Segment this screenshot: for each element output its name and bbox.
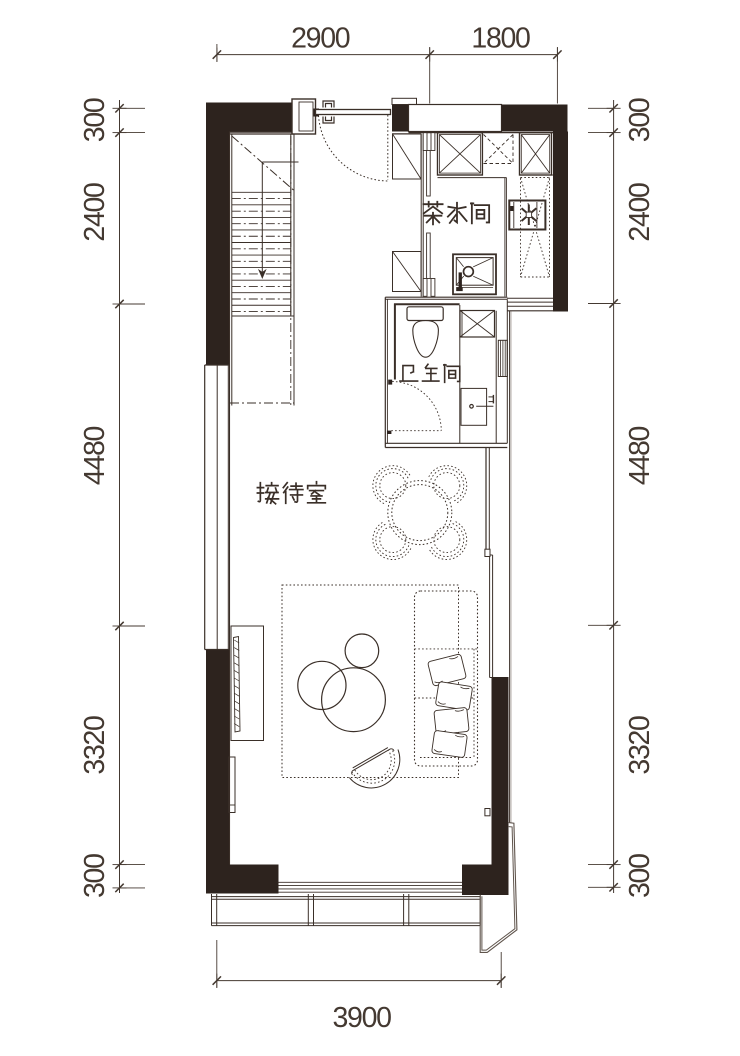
svg-text:300: 300 xyxy=(624,98,656,142)
svg-text:3320: 3320 xyxy=(624,716,656,775)
svg-text:2400: 2400 xyxy=(624,183,656,242)
svg-text:300: 300 xyxy=(624,854,656,898)
svg-text:2400: 2400 xyxy=(79,183,111,242)
svg-text:1800: 1800 xyxy=(471,23,530,55)
svg-text:300: 300 xyxy=(79,854,111,898)
svg-text:300: 300 xyxy=(79,98,111,142)
svg-text:3320: 3320 xyxy=(79,716,111,775)
svg-text:3900: 3900 xyxy=(332,1002,391,1034)
svg-text:2900: 2900 xyxy=(291,23,350,55)
svg-text:4480: 4480 xyxy=(624,426,656,485)
svg-text:4480: 4480 xyxy=(79,426,111,485)
